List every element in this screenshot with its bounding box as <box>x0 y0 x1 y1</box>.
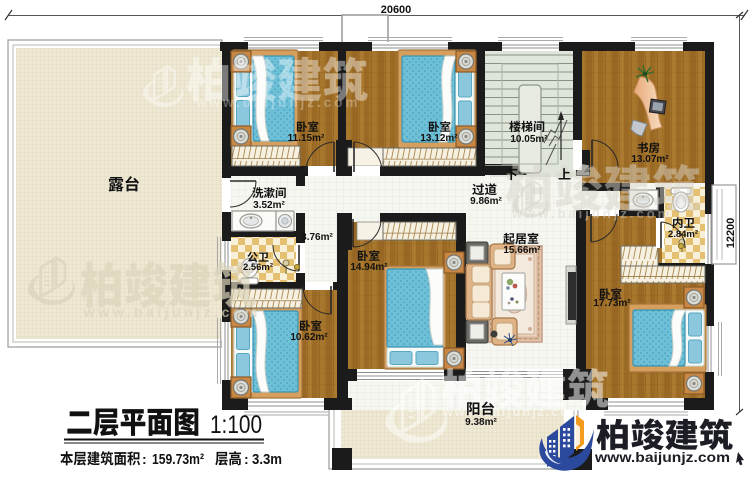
svg-text::: : <box>244 451 249 467</box>
svg-text::: : <box>142 451 147 467</box>
svg-text:9.38m²: 9.38m² <box>465 417 497 428</box>
svg-text:10.05m²: 10.05m² <box>510 134 548 145</box>
svg-text:10.62m²: 10.62m² <box>290 332 328 343</box>
svg-text:3.76m²: 3.76m² <box>301 232 333 243</box>
svg-text:12200: 12200 <box>725 218 737 249</box>
svg-text:3.3m: 3.3m <box>252 451 282 468</box>
svg-text:www.baijunjz.com: www.baijunjz.com <box>83 304 261 320</box>
svg-text:www.baijunjz.com: www.baijunjz.com <box>442 405 583 419</box>
svg-text:14.94m²: 14.94m² <box>350 262 388 273</box>
svg-text:1:100: 1:100 <box>210 411 262 439</box>
svg-text:www.baijunjz.com: www.baijunjz.com <box>195 95 361 110</box>
svg-text:11.15m²: 11.15m² <box>288 133 325 144</box>
svg-text:159.73m²: 159.73m² <box>152 451 204 468</box>
svg-text:20600: 20600 <box>381 4 412 16</box>
svg-text:13.07m²: 13.07m² <box>631 154 669 165</box>
svg-text:9.86m²: 9.86m² <box>470 196 502 207</box>
svg-text:www.baijunjz.com: www.baijunjz.com <box>594 449 730 465</box>
svg-text:15.66m²: 15.66m² <box>503 245 541 256</box>
svg-text:2.56m²: 2.56m² <box>243 262 273 273</box>
svg-text:2.84m²: 2.84m² <box>668 229 698 240</box>
svg-text:17.73m²: 17.73m² <box>593 298 631 309</box>
svg-text:13.12m²: 13.12m² <box>420 133 458 144</box>
svg-text:www.baijunjz.com: www.baijunjz.com <box>511 206 672 221</box>
svg-text:3.52m²: 3.52m² <box>253 200 285 211</box>
